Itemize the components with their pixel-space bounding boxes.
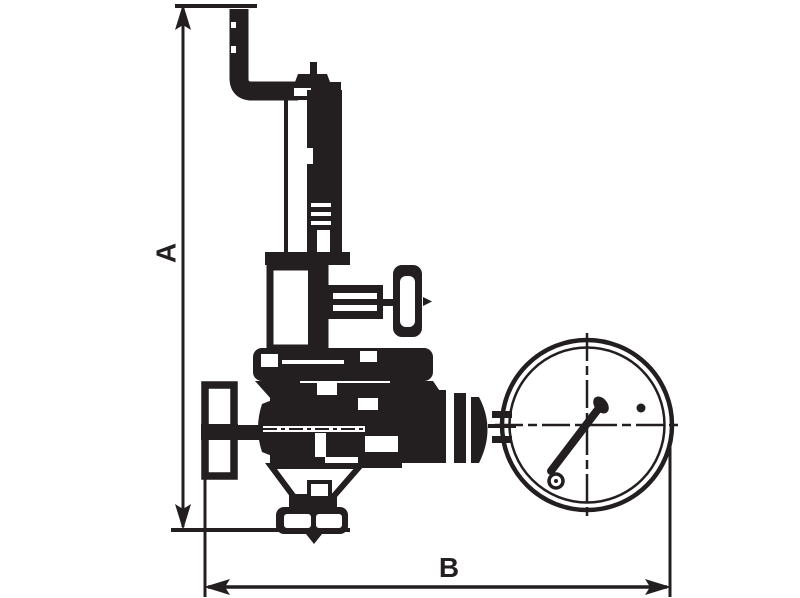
vent-pipe-mark (231, 46, 236, 53)
port-tube (327, 285, 383, 319)
outlet-flange (276, 507, 348, 544)
t-handle-window (400, 276, 415, 327)
body-slot (315, 433, 326, 457)
body-flange (253, 348, 433, 381)
vent-pipe (231, 9, 298, 91)
dimension-b-label: B (439, 552, 459, 583)
flange-groove (282, 360, 344, 364)
handwheel-hub (201, 424, 238, 440)
body-block (270, 383, 402, 468)
connector-gap (466, 398, 471, 456)
gauge-needle-hub-dot (554, 479, 558, 483)
bonnet-base-flange (265, 252, 350, 265)
gauge-stem-top (492, 411, 512, 418)
vent-pipe-mark (231, 22, 236, 28)
column-notch (307, 148, 313, 164)
body-highlight (358, 398, 378, 410)
connector-gap (446, 397, 454, 459)
thread-mark (311, 212, 331, 216)
gauge-stem-centerline (488, 424, 516, 428)
thread-mark (311, 203, 331, 207)
flange-highlight (360, 351, 377, 362)
connector-bullet-nut (471, 397, 488, 463)
adjuster-column (307, 90, 342, 254)
column-slot (317, 230, 330, 254)
port-highlight (333, 293, 377, 299)
dimension-a-label: A (151, 243, 182, 263)
port-highlight (333, 305, 377, 311)
gauge-dial-dot (637, 404, 646, 413)
handwheel (201, 385, 260, 476)
flange-highlight (261, 354, 278, 367)
outlet-flange-window (316, 514, 342, 528)
pressure-gauge (495, 333, 683, 519)
cap-pin (310, 62, 317, 74)
technical-drawing-canvas: A B (0, 0, 800, 598)
cap-top (295, 74, 330, 82)
spring-bonnet (265, 90, 350, 265)
vent-pipe-run (239, 9, 298, 91)
outlet-flange-window (284, 514, 311, 528)
handwheel-stem (238, 425, 260, 440)
outlet-spigot (306, 534, 322, 544)
connector-nut (398, 390, 446, 463)
spring-chamber (270, 265, 328, 350)
gauge-stem-bottom (492, 436, 512, 443)
gauge-connector (398, 390, 516, 463)
connector-collar (454, 393, 466, 463)
valve-technical-drawing: A B (0, 0, 800, 598)
neck-window (309, 482, 330, 498)
flange-band (253, 348, 433, 381)
vent-port-handle (327, 265, 432, 337)
body-highlight (317, 382, 337, 395)
handle-pin (423, 297, 432, 306)
thread-mark (311, 221, 331, 225)
chamber-stem (308, 265, 328, 350)
gauge-needle (551, 404, 602, 471)
